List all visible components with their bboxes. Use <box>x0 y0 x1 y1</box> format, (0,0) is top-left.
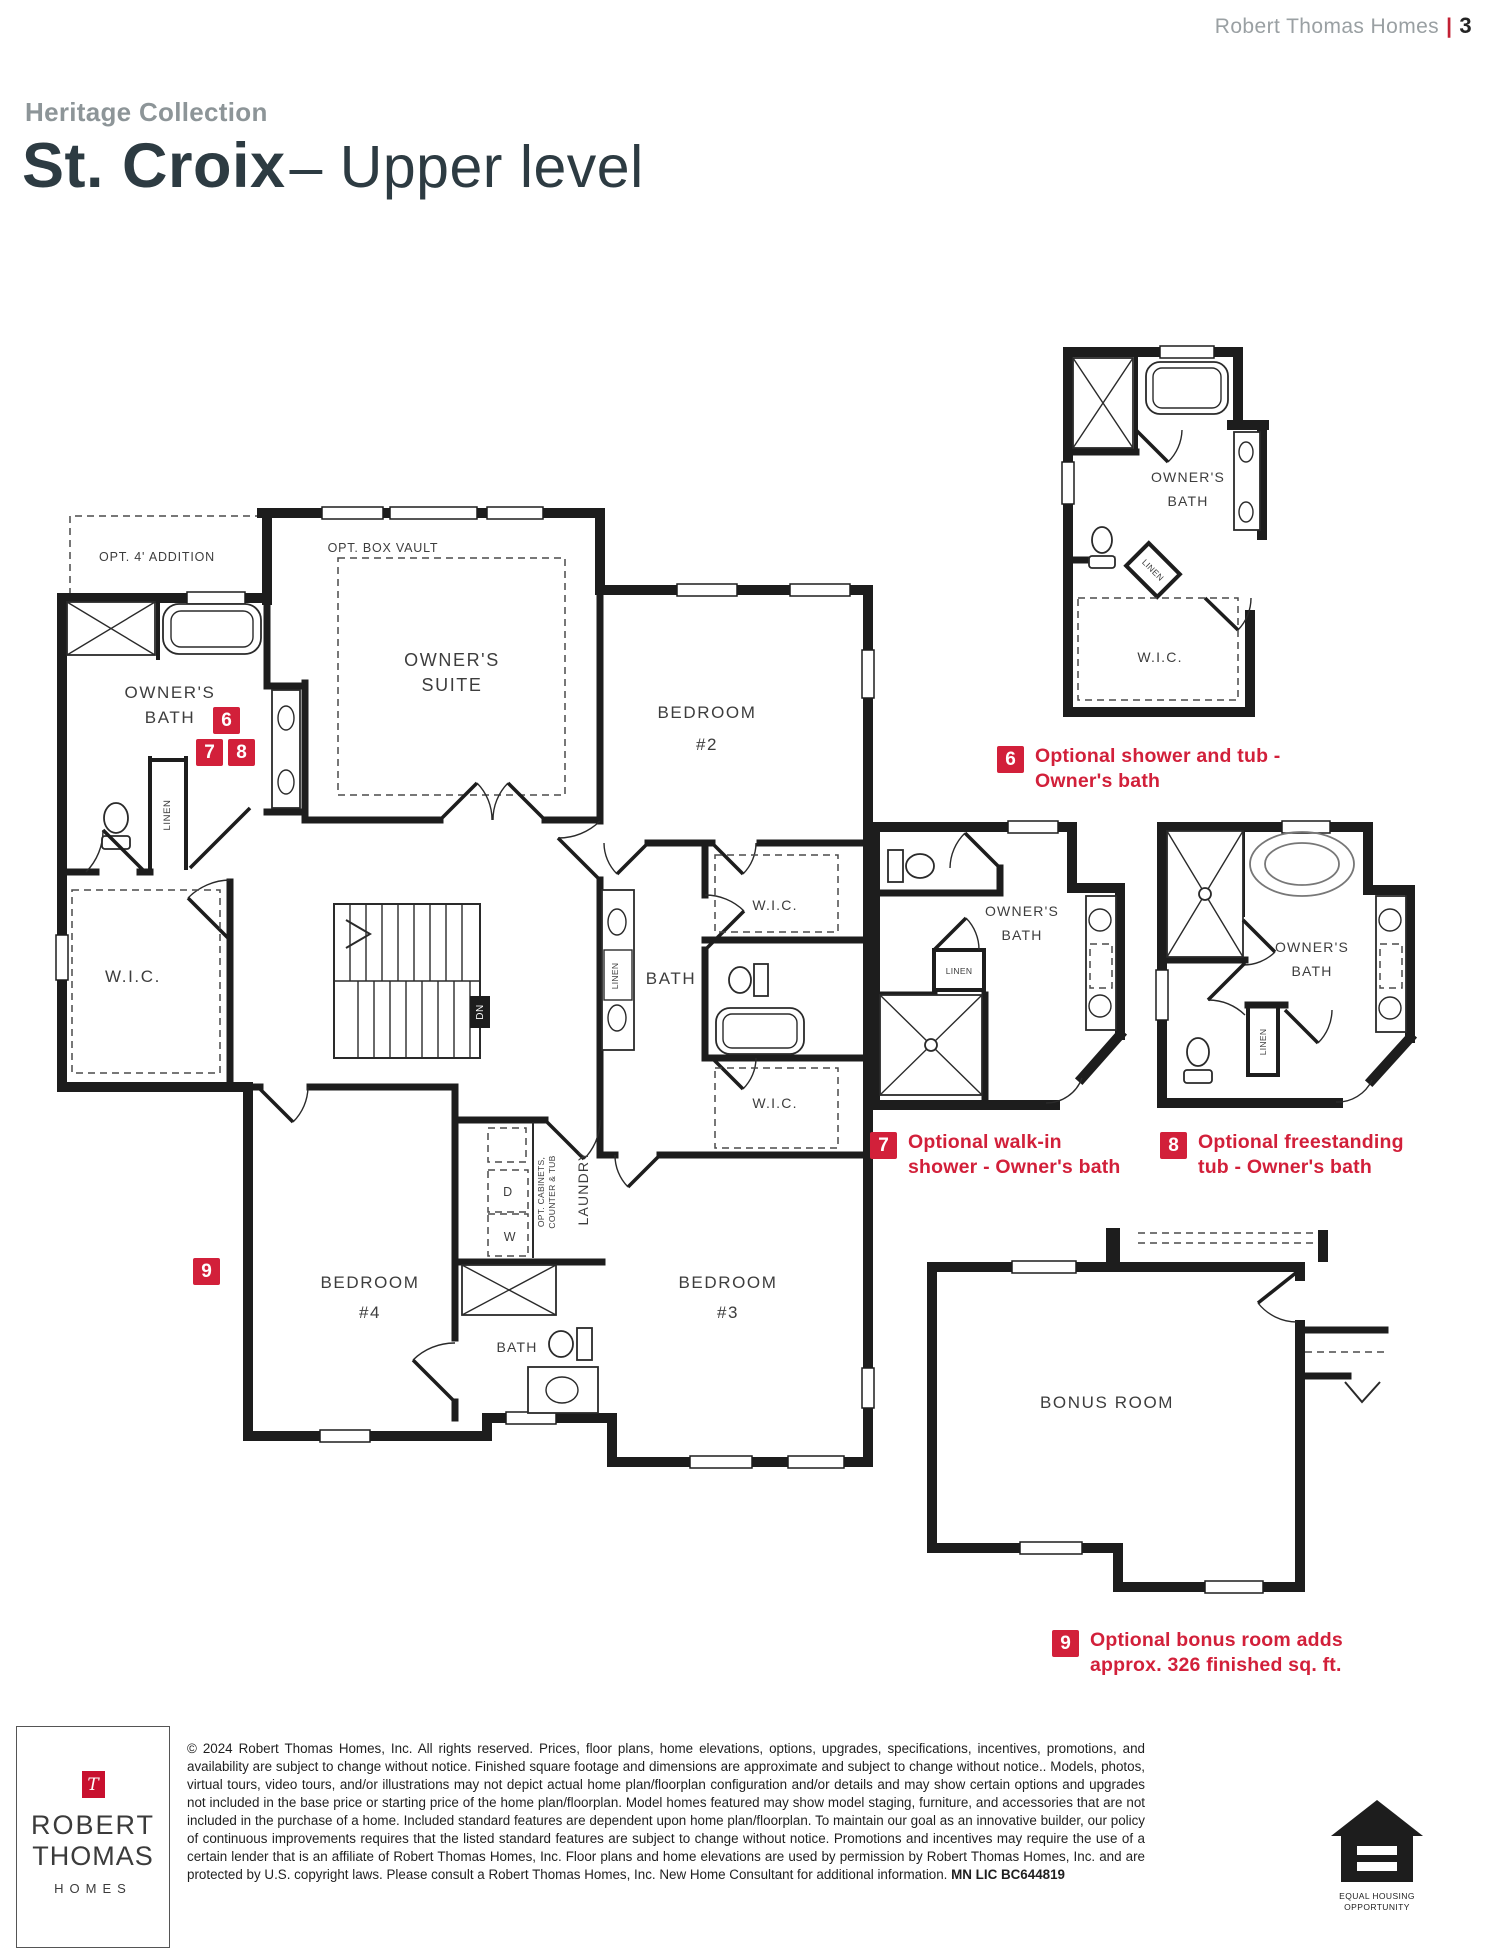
main-plan-badge-9: 9 <box>193 1258 220 1285</box>
option7-bath-label: OWNER'S <box>985 903 1059 919</box>
option7-window <box>1008 821 1058 833</box>
laundry-label: LAUNDRY <box>575 1150 591 1225</box>
option6-floorplan: LINEN OWNER'S BATH W.I.C. <box>1055 340 1270 725</box>
caption-6-line1: Optional shower and tub - <box>1035 744 1281 769</box>
option6-vanity-icon <box>1234 432 1260 530</box>
logo-mark-icon: T <box>82 1771 105 1798</box>
bonus-door <box>1258 1272 1297 1322</box>
hall-linen-label: LINEN <box>610 963 620 990</box>
option8-bath-label: OWNER'S <box>1275 939 1349 955</box>
owners-linen-label: LINEN <box>162 800 173 831</box>
main-floorplan: DN OPT. 4' ADDITION OPT. BOX V <box>55 505 885 1465</box>
bedroom4-label: BEDROOM <box>320 1273 419 1292</box>
option8-toilet-icon <box>1184 1038 1212 1083</box>
option8-bath-label: BATH <box>1291 963 1332 979</box>
eho-line2: OPPORTUNITY <box>1331 1902 1423 1913</box>
logo-thomas: THOMAS <box>32 1841 154 1872</box>
hall-bath-label: BATH <box>646 969 696 988</box>
caption-badge-7: 7 <box>870 1132 897 1159</box>
stairs-dn-label: DN <box>475 1004 486 1019</box>
option6-linen-closet: LINEN <box>1126 543 1180 597</box>
hall-tub-icon <box>716 1008 804 1054</box>
caption-7: Optional walk-in shower - Owner's bath <box>908 1130 1121 1180</box>
washer-label: W <box>504 1230 517 1244</box>
option7-shower-icon <box>880 995 982 1095</box>
bonus-windows <box>1012 1261 1263 1593</box>
caption-7-line2: shower - Owner's bath <box>908 1155 1121 1180</box>
owners-suite-label: OWNER'S <box>404 650 500 670</box>
owners-tub-icon <box>163 604 261 654</box>
caption-badge-6: 6 <box>997 746 1024 773</box>
bedroom3-label: BEDROOM <box>678 1273 777 1292</box>
model-name: St. Croix <box>22 130 286 202</box>
caption-6: Optional shower and tub - Owner's bath <box>1035 744 1281 794</box>
main-plan-badge-8: 8 <box>228 739 255 766</box>
brand-name: Robert Thomas Homes <box>1215 15 1439 38</box>
license-number: MN LIC BC644819 <box>951 1867 1065 1882</box>
bedroom2-label: BEDROOM <box>657 703 756 722</box>
option7-bath-label: BATH <box>1001 927 1042 943</box>
brochure-page: Robert Thomas Homes|3 Heritage Collectio… <box>0 0 1500 1955</box>
caption-badge-8: 8 <box>1160 1132 1187 1159</box>
lower-shower-icon <box>462 1265 556 1315</box>
opt-cabinets-label: OPT. CABINETS, <box>536 1157 546 1227</box>
option7-vanity-icon <box>1086 896 1116 1030</box>
option6-wic-label: W.I.C. <box>1137 649 1182 665</box>
option8-vanity-icon <box>1376 896 1406 1032</box>
eho-line1: EQUAL HOUSING <box>1331 1891 1423 1902</box>
page-number: 3 <box>1459 13 1472 38</box>
bedroom3-label: #3 <box>717 1303 739 1322</box>
caption-badge-9: 9 <box>1052 1630 1079 1657</box>
equal-housing-logo: EQUAL HOUSING OPPORTUNITY <box>1331 1800 1423 1913</box>
bonus-room-label: BONUS ROOM <box>1040 1393 1174 1412</box>
bonus-room-floorplan: BONUS ROOM <box>925 1222 1400 1602</box>
opt-addition-label: OPT. 4' ADDITION <box>99 550 215 564</box>
dryer-label: D <box>503 1185 513 1199</box>
lower-toilet-icon <box>549 1328 592 1360</box>
caption-8-line2: tub - Owner's bath <box>1198 1155 1404 1180</box>
stairs: DN <box>334 904 490 1058</box>
page-header: Robert Thomas Homes|3 <box>1215 13 1472 39</box>
opt-box-vault-label: OPT. BOX VAULT <box>328 541 439 555</box>
option6-bath-label: OWNER'S <box>1151 469 1225 485</box>
option7-toilet-icon <box>888 850 934 882</box>
header-divider: | <box>1446 15 1452 38</box>
caption-9-line2: approx. 326 finished sq. ft. <box>1090 1653 1343 1678</box>
equal-housing-icon <box>1331 1800 1423 1884</box>
bedroom3-wic-label: W.I.C. <box>752 1095 797 1111</box>
caption-9: Optional bonus room adds approx. 326 fin… <box>1090 1628 1343 1678</box>
option7-linen-label: LINEN <box>946 966 973 976</box>
owners-suite-label: SUITE <box>421 675 482 695</box>
bedroom2-wic-label: W.I.C. <box>752 897 797 913</box>
option7-floorplan: OWNER'S BATH LINEN <box>862 815 1128 1115</box>
option6-bath-label: BATH <box>1167 493 1208 509</box>
option8-linen-label: LINEN <box>1258 1029 1268 1056</box>
bedroom4-label: #4 <box>359 1303 381 1322</box>
owners-vanity-icon <box>272 690 300 808</box>
owners-shower-icon <box>67 602 155 655</box>
owners-bath-label: OWNER'S <box>125 683 216 702</box>
main-plan-badge-6: 6 <box>213 707 240 734</box>
caption-8: Optional freestanding tub - Owner's bath <box>1198 1130 1404 1180</box>
hall-toilet-icon <box>729 964 768 996</box>
option8-freestanding-tub-icon <box>1250 832 1354 896</box>
caption-7-line1: Optional walk-in <box>908 1130 1121 1155</box>
caption-6-line2: Owner's bath <box>1035 769 1281 794</box>
level-name: – Upper level <box>290 133 644 201</box>
legal-disclaimer: © 2024 Robert Thomas Homes, Inc. All rig… <box>187 1740 1145 1884</box>
doors <box>86 783 756 1402</box>
logo-homes: HOMES <box>54 1881 132 1896</box>
option6-tub-icon <box>1146 362 1228 414</box>
owners-bath-label: BATH <box>145 708 195 727</box>
page-title: St. Croix – Upper level <box>22 130 644 202</box>
main-plan-badge-7: 7 <box>196 739 223 766</box>
owners-wic-label: W.I.C. <box>105 967 161 986</box>
option6-shower-icon <box>1073 358 1133 448</box>
opt-cabinets-label: COUNTER & TUB <box>547 1155 557 1228</box>
bedroom2-label: #2 <box>696 735 718 754</box>
option8-floorplan: OWNER'S BATH LINEN <box>1150 815 1418 1115</box>
legal-text: © 2024 Robert Thomas Homes, Inc. All rig… <box>187 1741 1145 1882</box>
collection-name: Heritage Collection <box>25 97 268 128</box>
lower-sink-icon <box>528 1367 598 1413</box>
option8-shower-icon <box>1167 831 1243 957</box>
caption-8-line1: Optional freestanding <box>1198 1130 1404 1155</box>
caption-9-line1: Optional bonus room adds <box>1090 1628 1343 1653</box>
robert-thomas-logo: T ROBERT THOMAS HOMES <box>16 1726 170 1948</box>
lower-bath-label: BATH <box>496 1339 537 1355</box>
option6-toilet-icon <box>1089 527 1115 568</box>
logo-robert: ROBERT <box>31 1810 155 1841</box>
